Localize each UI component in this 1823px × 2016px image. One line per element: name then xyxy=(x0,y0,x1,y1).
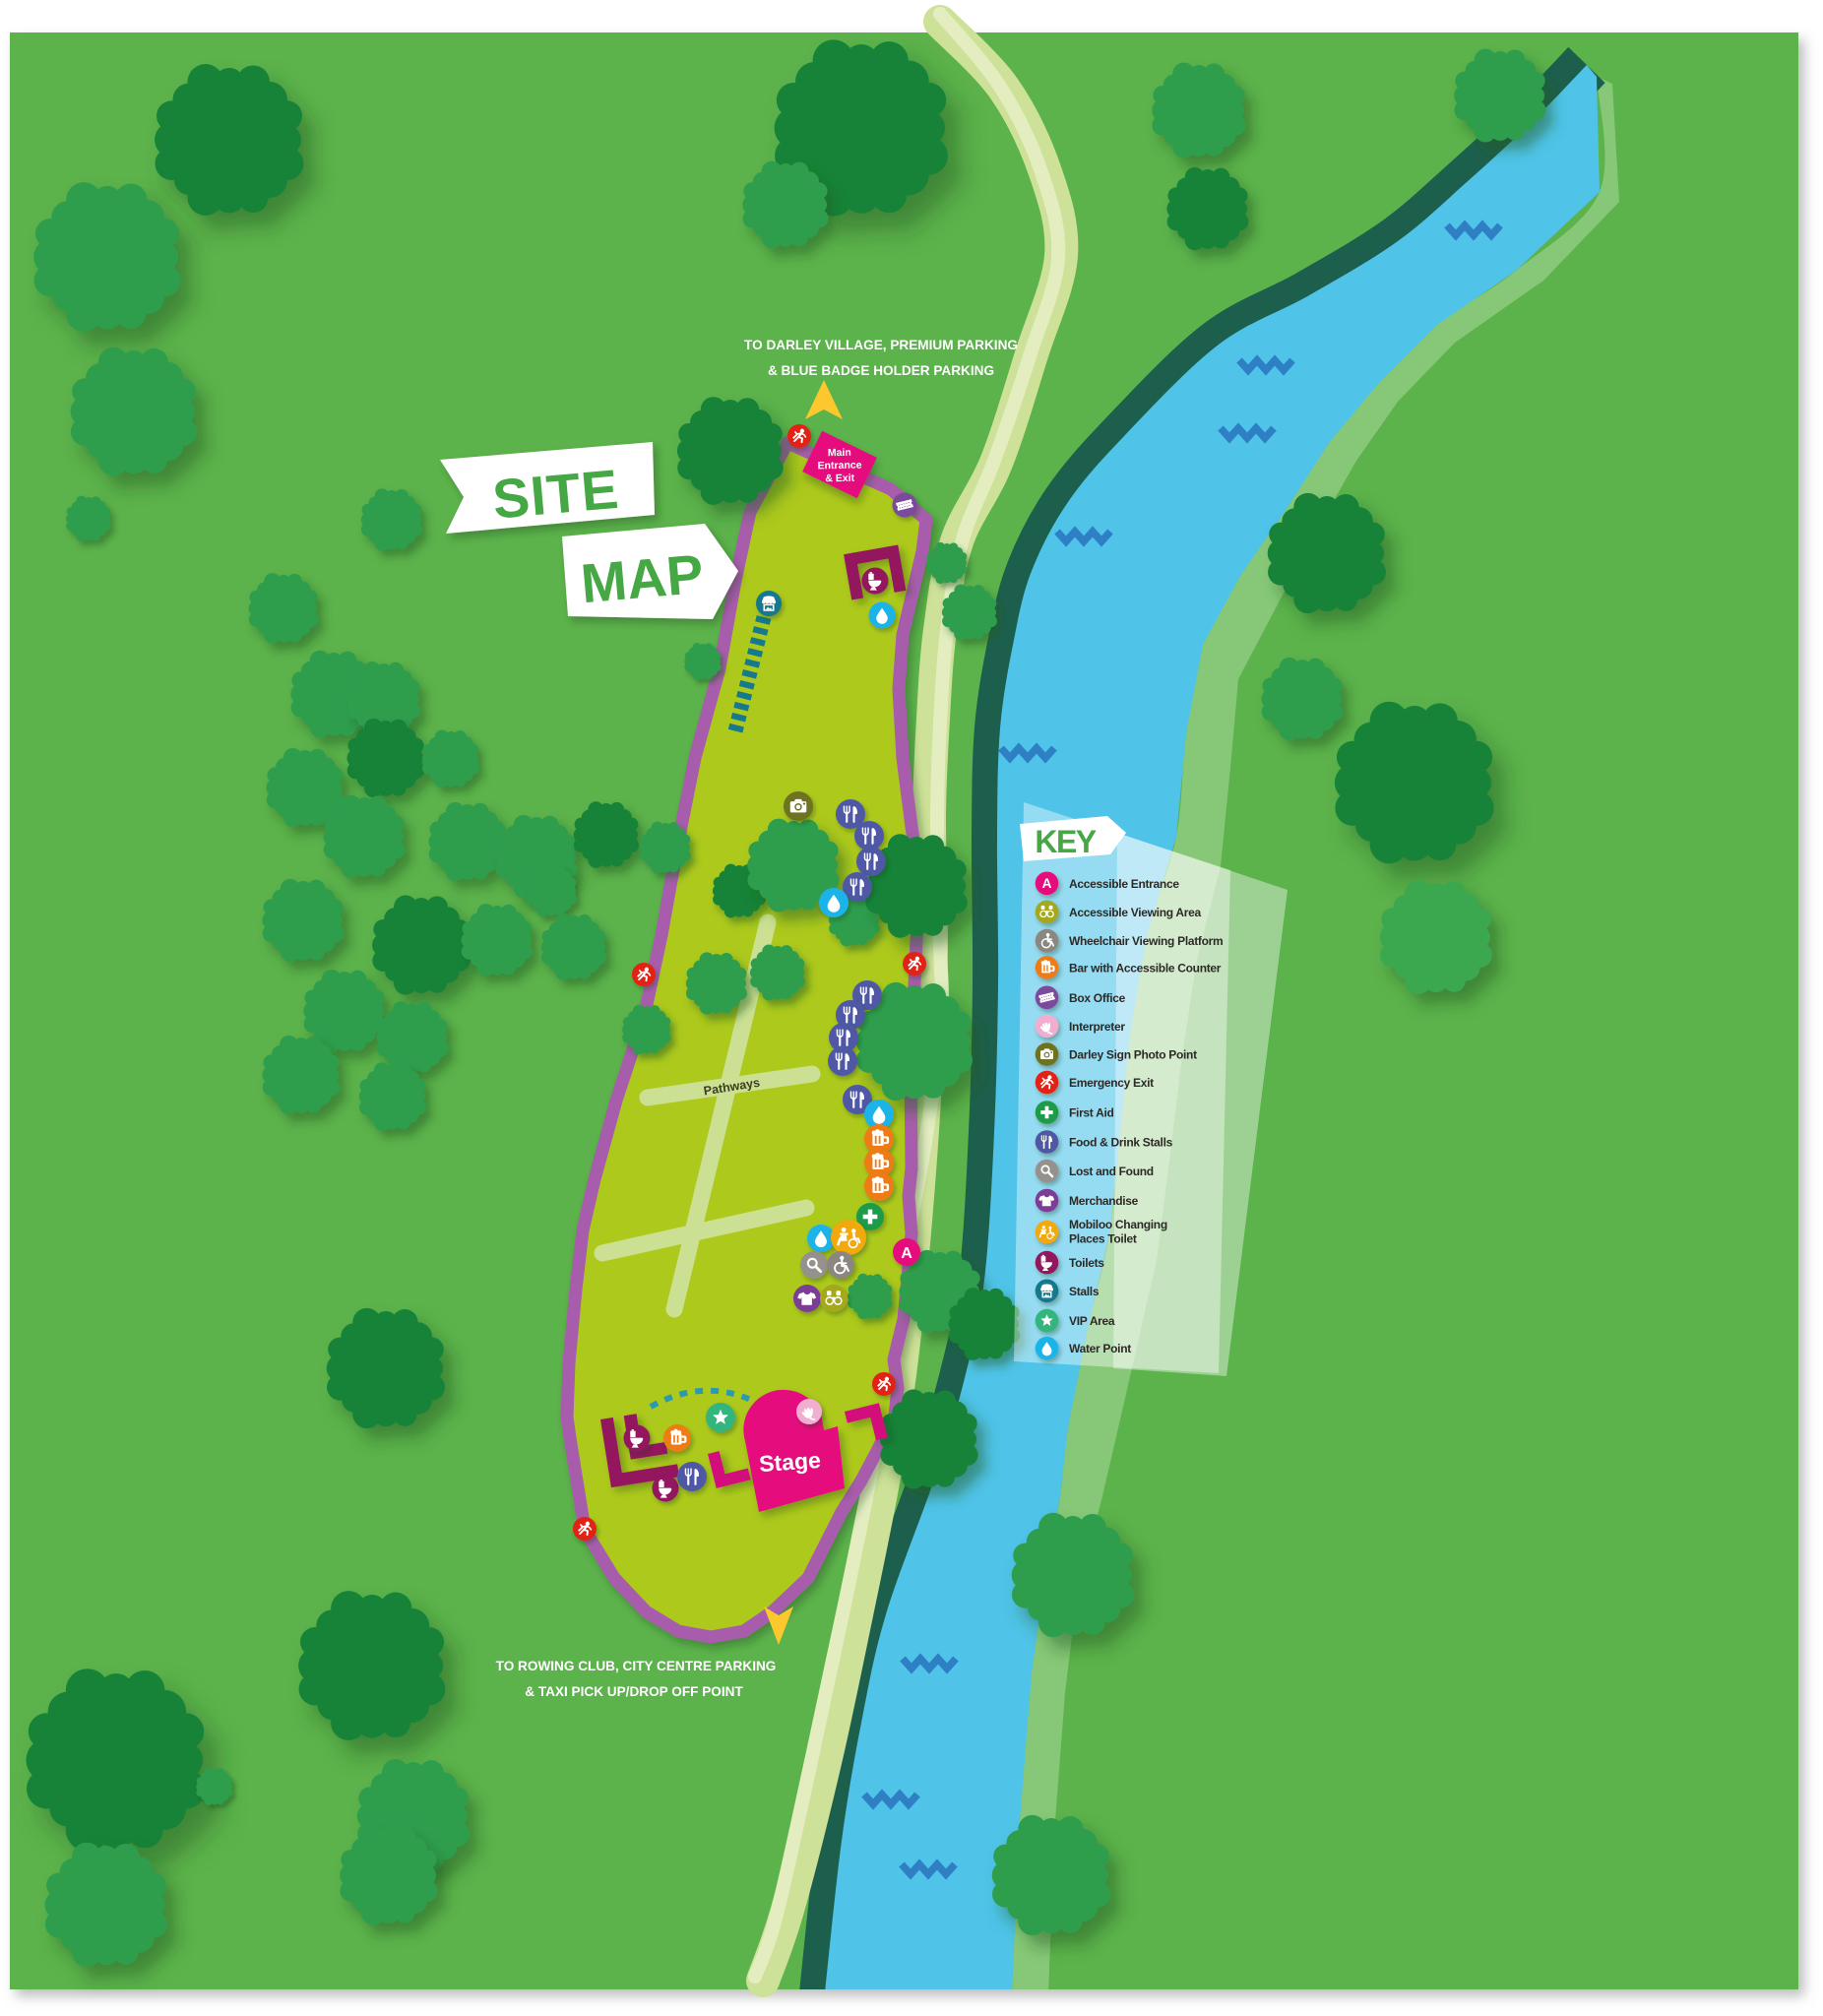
svg-text:Mobiloo Changing: Mobiloo Changing xyxy=(1069,1218,1167,1231)
svg-text:& TAXI PICK UP/DROP OFF POINT: & TAXI PICK UP/DROP OFF POINT xyxy=(525,1684,743,1699)
svg-text:& Exit: & Exit xyxy=(825,472,854,485)
svg-text:TO DARLEY VILLAGE, PREMIUM PAR: TO DARLEY VILLAGE, PREMIUM PARKING xyxy=(744,338,1018,352)
svg-text:Interpreter: Interpreter xyxy=(1069,1020,1125,1034)
svg-text:Wheelchair Viewing Platform: Wheelchair Viewing Platform xyxy=(1069,934,1223,948)
svg-text:Water Point: Water Point xyxy=(1069,1342,1131,1355)
svg-text:SITE: SITE xyxy=(490,458,621,531)
svg-text:Merchandise: Merchandise xyxy=(1069,1194,1139,1208)
svg-text:Bar with Accessible Counter: Bar with Accessible Counter xyxy=(1069,961,1222,975)
svg-text:Accessible Viewing Area: Accessible Viewing Area xyxy=(1069,906,1201,919)
svg-text:Toilets: Toilets xyxy=(1069,1256,1104,1270)
svg-text:Entrance: Entrance xyxy=(817,460,861,472)
svg-text:First Aid: First Aid xyxy=(1069,1106,1114,1120)
svg-text:Emergency Exit: Emergency Exit xyxy=(1069,1076,1154,1090)
svg-text:Places Toilet: Places Toilet xyxy=(1069,1232,1137,1246)
svg-text:KEY: KEY xyxy=(1035,824,1096,859)
svg-text:Lost and Found: Lost and Found xyxy=(1069,1165,1154,1178)
svg-text:Accessible Entrance: Accessible Entrance xyxy=(1069,877,1179,891)
svg-text:Food & Drink Stalls: Food & Drink Stalls xyxy=(1069,1136,1173,1150)
svg-text:Stalls: Stalls xyxy=(1069,1285,1100,1298)
svg-text:Main: Main xyxy=(828,447,851,459)
svg-text:MAP: MAP xyxy=(579,542,706,615)
svg-text:A: A xyxy=(901,1244,912,1262)
svg-text:TO ROWING CLUB, CITY CENTRE PA: TO ROWING CLUB, CITY CENTRE PARKING xyxy=(496,1659,777,1673)
svg-text:& BLUE BADGE HOLDER PARKING: & BLUE BADGE HOLDER PARKING xyxy=(768,363,994,378)
svg-text:A: A xyxy=(1042,876,1052,891)
svg-text:VIP Area: VIP Area xyxy=(1069,1314,1115,1328)
svg-text:Box Office: Box Office xyxy=(1069,991,1126,1005)
svg-text:Darley Sign Photo Point: Darley Sign Photo Point xyxy=(1069,1048,1197,1062)
svg-text:Stage: Stage xyxy=(758,1447,821,1477)
